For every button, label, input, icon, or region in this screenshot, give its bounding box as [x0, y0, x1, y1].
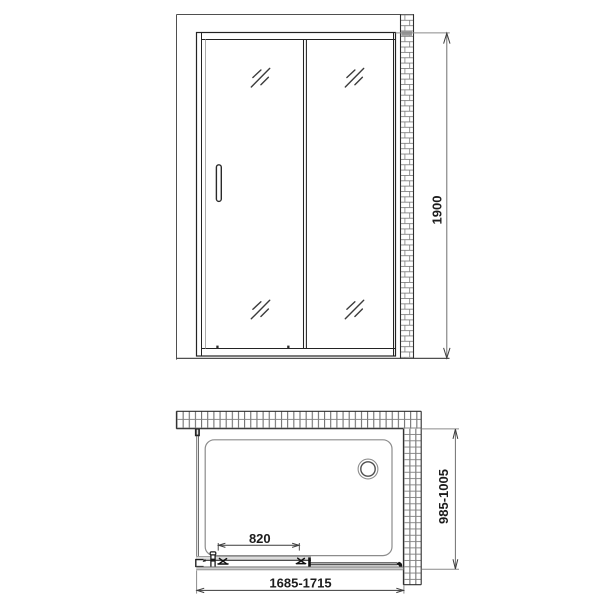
svg-text:985-1005: 985-1005 [436, 469, 451, 524]
svg-text:1685-1715: 1685-1715 [269, 576, 331, 591]
svg-text:1900: 1900 [430, 196, 445, 225]
svg-text:820: 820 [249, 531, 271, 546]
